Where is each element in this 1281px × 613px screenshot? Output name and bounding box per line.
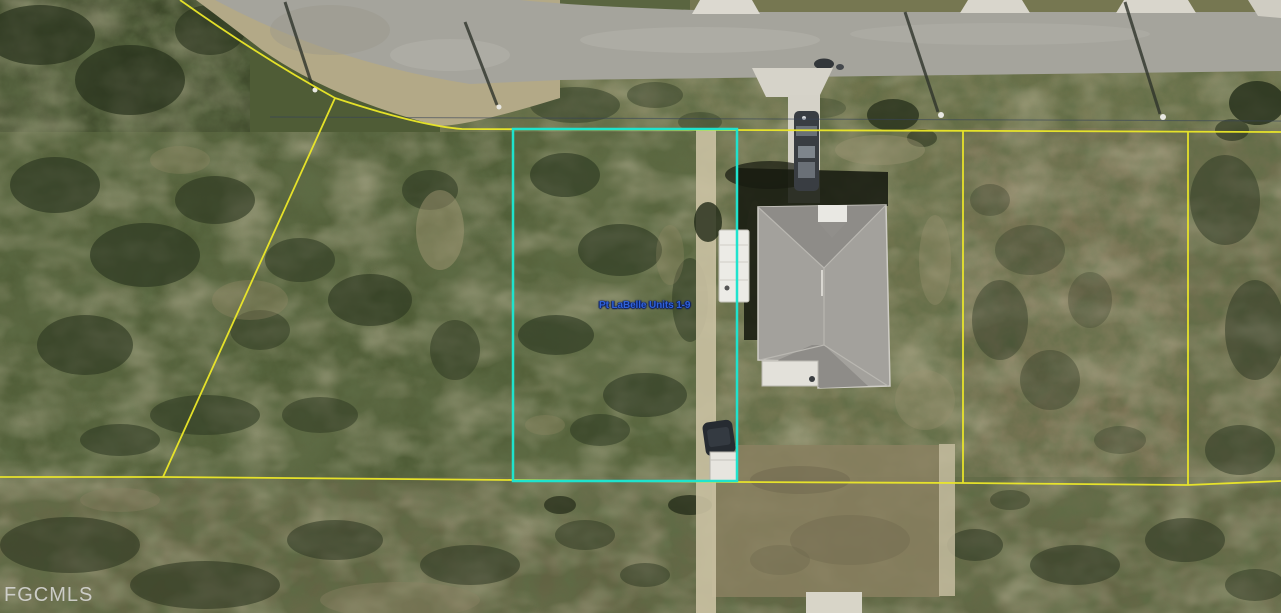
north-driveway-apron	[960, 0, 1030, 13]
dirt-path	[696, 128, 716, 613]
rear-pad	[806, 592, 862, 613]
parcel-label: Pt LaBelle Units 1-9	[599, 300, 690, 311]
vehicle-van	[794, 111, 819, 191]
north-driveway-apron	[692, 0, 760, 14]
shed	[710, 452, 737, 481]
roof-vent	[818, 205, 847, 222]
trailer	[719, 230, 749, 302]
vehicle-suv	[702, 419, 736, 457]
mls-watermark: FGCMLS	[4, 584, 93, 607]
aerial-photo: Pt LaBelle Units 1-9 FGCMLS	[0, 0, 1281, 613]
side-dirt-strip	[939, 444, 955, 596]
object-on-road	[814, 59, 834, 70]
driveway	[752, 68, 833, 97]
bush-shadow	[694, 202, 722, 242]
patio	[762, 361, 818, 386]
